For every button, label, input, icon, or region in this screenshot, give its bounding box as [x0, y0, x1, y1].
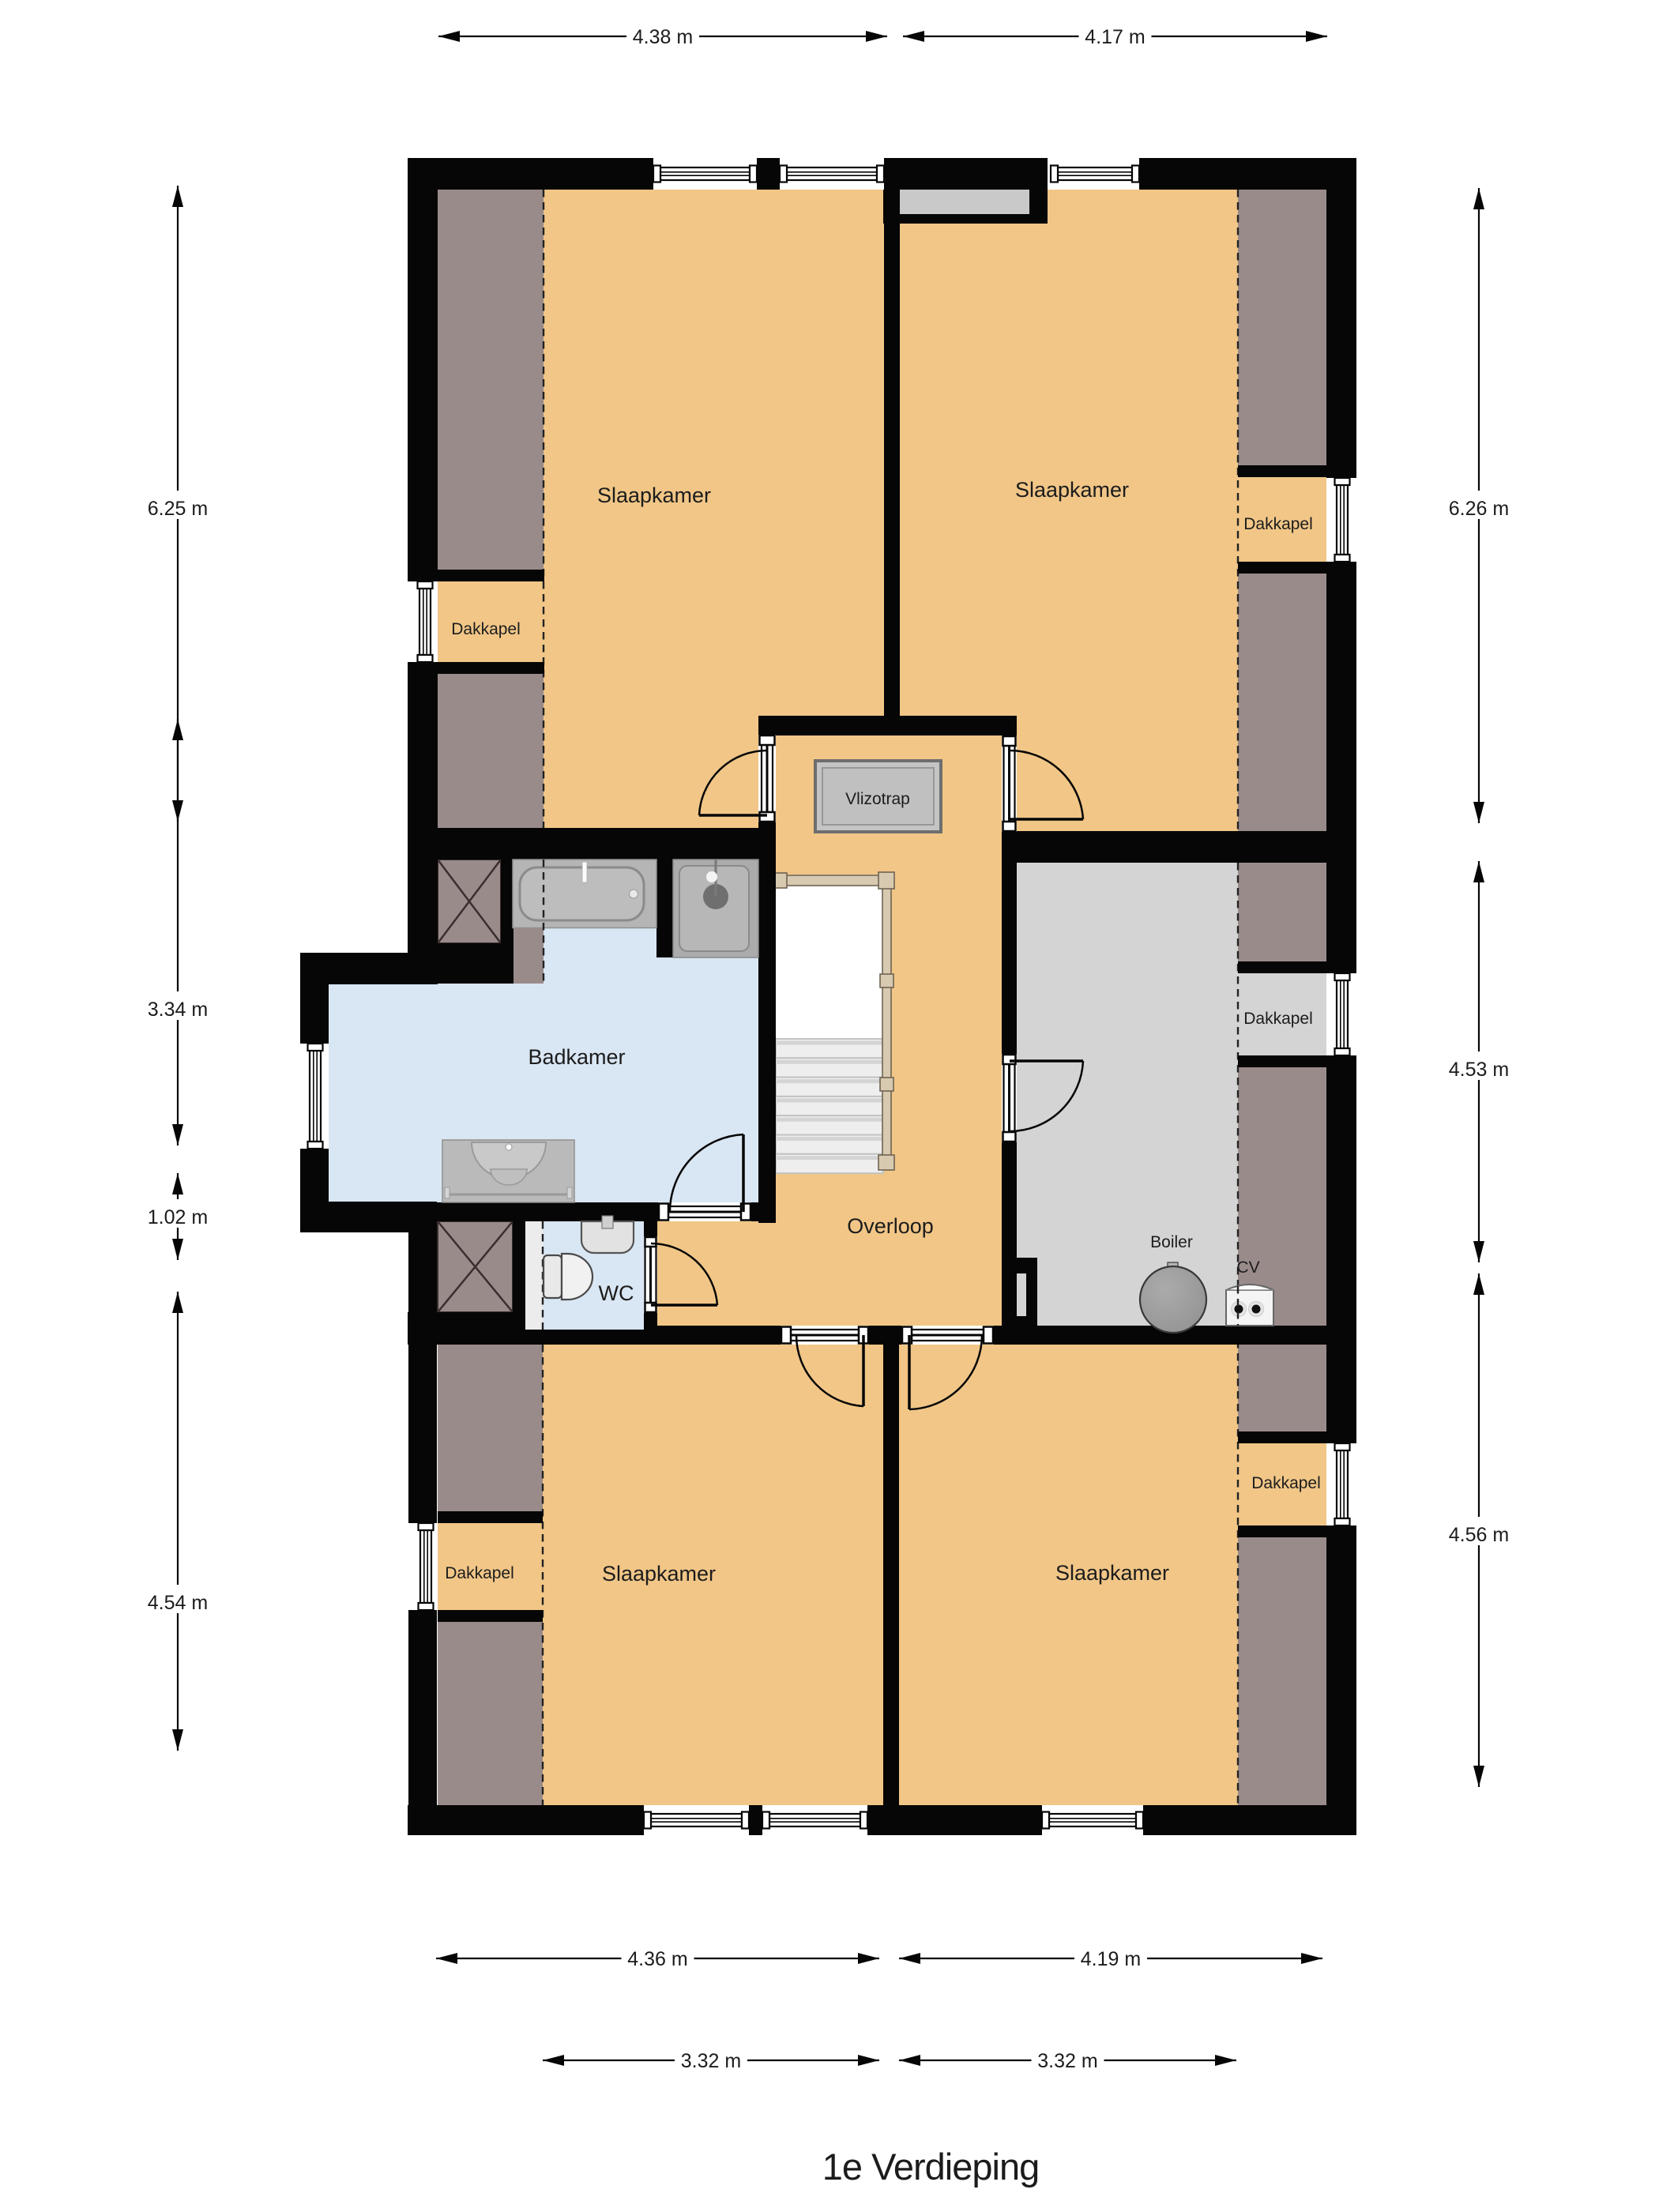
- svg-text:4.53 m: 4.53 m: [1449, 1059, 1509, 1081]
- svg-text:Boiler: Boiler: [1150, 1233, 1193, 1251]
- svg-text:4.56 m: 4.56 m: [1449, 1524, 1509, 1546]
- svg-text:Slaapkamer: Slaapkamer: [597, 483, 711, 507]
- svg-text:4.17 m: 4.17 m: [1085, 26, 1145, 48]
- svg-text:Slaapkamer: Slaapkamer: [1055, 1561, 1169, 1585]
- svg-text:Vlizotrap: Vlizotrap: [845, 790, 910, 808]
- svg-text:6.25 m: 6.25 m: [148, 498, 208, 520]
- svg-text:Dakkapel: Dakkapel: [451, 620, 521, 638]
- svg-text:4.38 m: 4.38 m: [633, 26, 693, 48]
- svg-text:CV: CV: [1236, 1258, 1259, 1277]
- svg-text:3.32 m: 3.32 m: [1037, 2050, 1097, 2072]
- svg-text:4.19 m: 4.19 m: [1081, 1948, 1141, 1970]
- svg-text:Slaapkamer: Slaapkamer: [1015, 478, 1129, 502]
- svg-text:4.36 m: 4.36 m: [627, 1948, 687, 1970]
- svg-text:3.32 m: 3.32 m: [681, 2050, 741, 2072]
- svg-text:Dakkapel: Dakkapel: [1243, 515, 1313, 533]
- svg-text:1e Verdieping: 1e Verdieping: [822, 2146, 1039, 2188]
- svg-text:Dakkapel: Dakkapel: [445, 1564, 514, 1582]
- svg-text:1.02 m: 1.02 m: [148, 1206, 208, 1228]
- svg-text:Dakkapel: Dakkapel: [1243, 1010, 1313, 1028]
- svg-text:Overloop: Overloop: [847, 1214, 934, 1238]
- svg-text:6.26 m: 6.26 m: [1449, 498, 1509, 520]
- svg-text:Slaapkamer: Slaapkamer: [602, 1562, 716, 1586]
- svg-text:3.34 m: 3.34 m: [148, 999, 208, 1021]
- svg-text:Dakkapel: Dakkapel: [1251, 1474, 1321, 1492]
- svg-text:Badkamer: Badkamer: [528, 1045, 625, 1069]
- svg-text:4.54 m: 4.54 m: [148, 1592, 208, 1614]
- svg-text:WC: WC: [599, 1281, 634, 1305]
